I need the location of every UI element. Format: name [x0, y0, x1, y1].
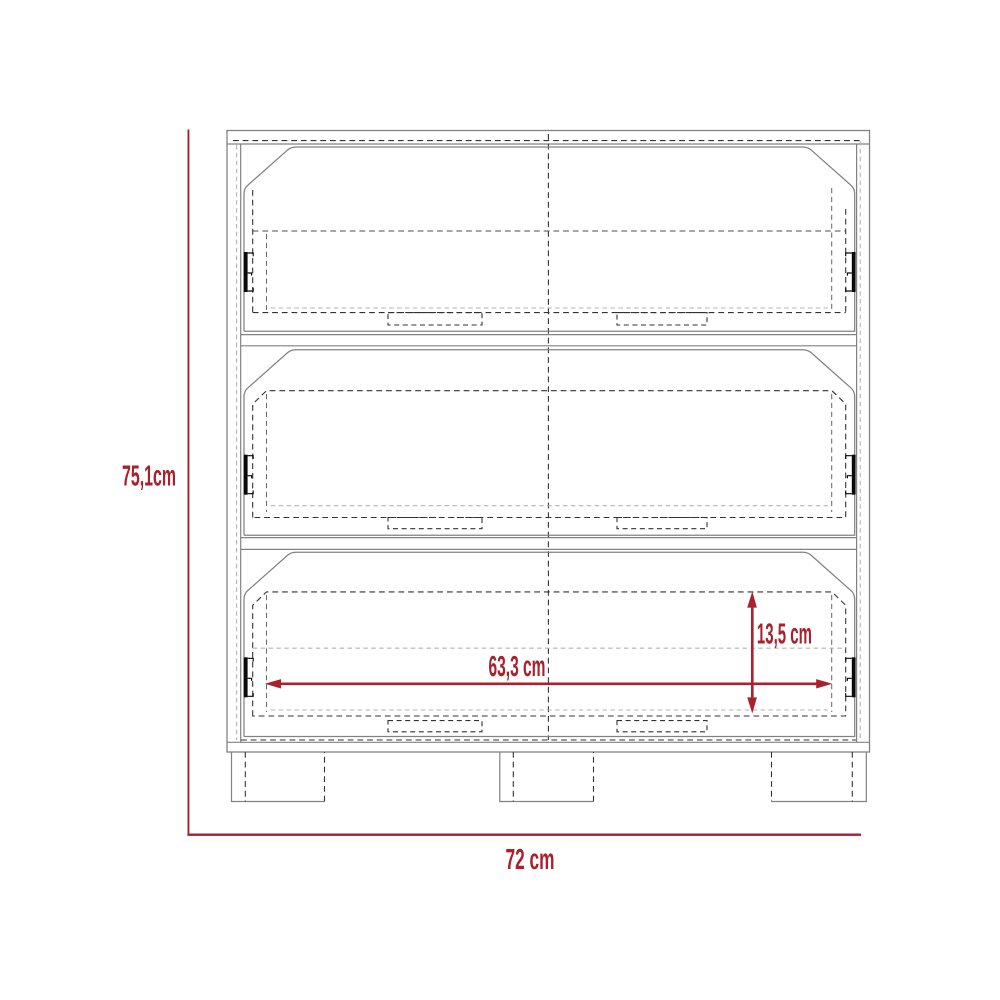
svg-text:63,3 cm: 63,3 cm — [489, 651, 546, 683]
svg-text:13,5 cm: 13,5 cm — [757, 619, 812, 651]
svg-text:72 cm: 72 cm — [506, 844, 555, 876]
svg-text:75,1cm: 75,1cm — [122, 461, 176, 493]
